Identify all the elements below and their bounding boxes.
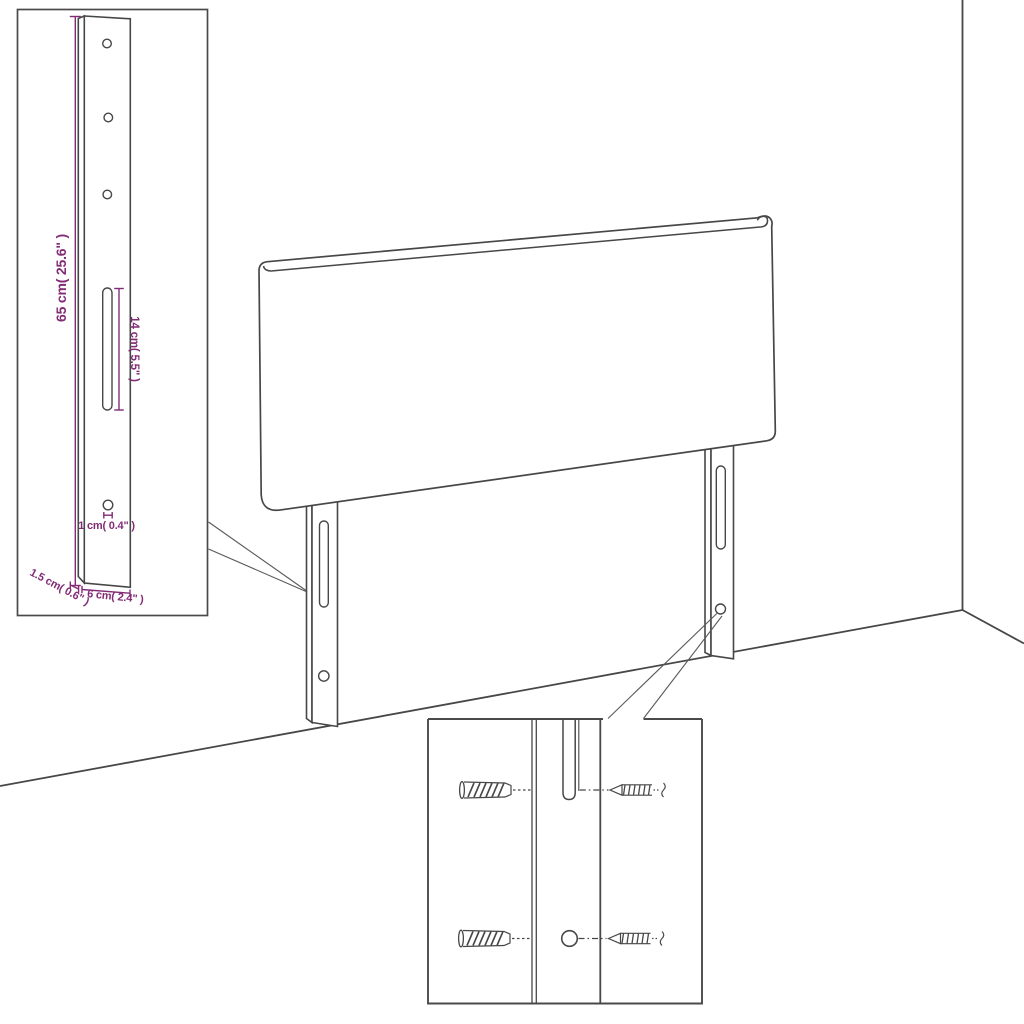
callout-line-right [644, 616, 723, 719]
bracket-hole-lower [103, 190, 112, 199]
right-leg [705, 433, 734, 659]
floor-line-right [963, 610, 1024, 644]
bracket-detail-inset: 65 cm( 25.6" ) 14 cm( 5.5" ) 1 cm( 0.4" … [18, 10, 208, 616]
dim-height-label: 65 cm( 25.6" ) [53, 234, 69, 322]
dim-hole-label: 1 cm( 0.4" ) [78, 520, 135, 532]
mounting-inset-fill [428, 719, 702, 1004]
left-leg-hole [319, 671, 329, 681]
bracket-drawing [78, 16, 130, 587]
left-leg-slot [320, 521, 329, 607]
bracket-hole-top [103, 39, 112, 48]
bracket-side-face [78, 16, 84, 583]
callout-lines-bracket-detail [209, 522, 307, 592]
dim-slot-label: 14 cm( 5.5" ) [128, 316, 140, 382]
callout-line-lower [209, 549, 307, 592]
right-leg-slot [716, 466, 725, 549]
right-leg-hole [716, 604, 726, 614]
bracket-small-hole [103, 500, 113, 510]
callout-line-left [608, 614, 717, 719]
left-leg [307, 493, 338, 727]
bracket-slot [103, 288, 112, 410]
headboard-outline [259, 216, 775, 510]
product-diagram: 65 cm( 25.6" ) 14 cm( 5.5" ) 1 cm( 0.4" … [0, 0, 1024, 1024]
mounting-detail-inset [428, 719, 702, 1004]
bracket-hole-middle [104, 113, 113, 122]
left-leg-side-face [307, 495, 313, 723]
headboard [259, 216, 775, 510]
callout-line-upper [209, 522, 307, 591]
